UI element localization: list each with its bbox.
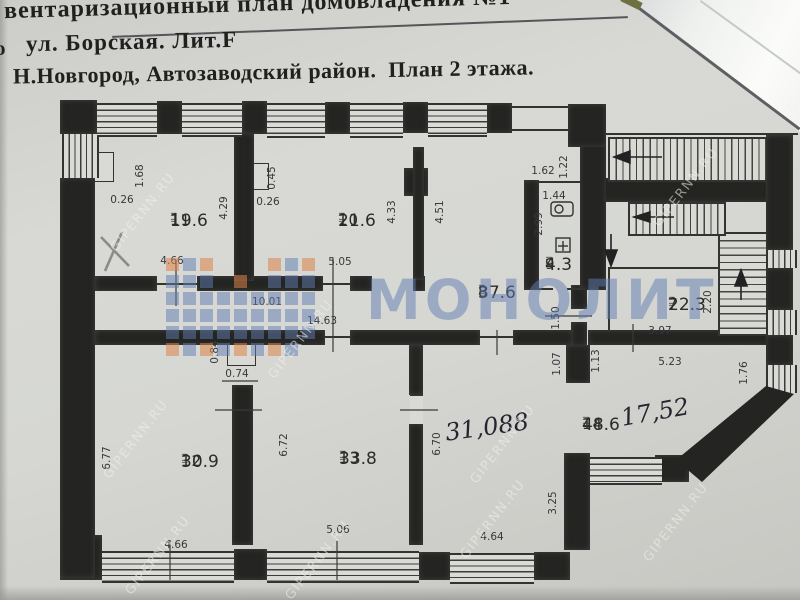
dimension-label: 1.07 <box>551 352 563 375</box>
dimension-label: 4.29 <box>218 196 230 219</box>
logo-tile <box>200 309 213 322</box>
logo-tile <box>268 309 281 322</box>
dimension-label: 0.26 <box>110 194 133 206</box>
logo-tile <box>234 309 247 322</box>
logo-tile <box>166 292 179 305</box>
logo-tile <box>183 343 196 356</box>
dimension-label: 4.33 <box>386 200 398 223</box>
logo-tile <box>166 275 179 288</box>
logo-tile <box>234 326 247 339</box>
logo-tile <box>268 326 281 339</box>
logo-tile <box>234 275 247 288</box>
logo-tile <box>200 292 213 305</box>
document-title-line2: ул. Борская. Лит.F <box>26 27 238 57</box>
logo-tile <box>251 292 264 305</box>
dimension-label: 1.13 <box>590 349 602 372</box>
logo-tile <box>217 292 230 305</box>
dimension-label: 1.62 <box>531 165 554 177</box>
logo-tile <box>268 258 281 271</box>
room-area: 30.9 <box>181 453 219 472</box>
logo-tile <box>183 258 196 271</box>
logo-tile <box>302 292 315 305</box>
logo-tile <box>268 292 281 305</box>
dimension-label: 1.68 <box>134 164 146 187</box>
dimension-label: 0.26 <box>256 196 279 208</box>
logo-tile <box>285 275 298 288</box>
logo-tile <box>166 343 179 356</box>
brand-watermark-text: МОНОЛИТ <box>366 268 718 332</box>
stair-arrow-left-upper-icon <box>614 151 662 163</box>
dimension-label: 2.99 <box>533 212 545 235</box>
logo-tile <box>285 292 298 305</box>
logo-tile <box>251 326 264 339</box>
toilet-icon <box>551 202 573 216</box>
logo-tile <box>217 343 230 356</box>
logo-tile <box>166 309 179 322</box>
logo-tile <box>251 309 264 322</box>
logo-tile <box>285 258 298 271</box>
dimension-label: 0.45 <box>266 166 278 189</box>
logo-tile <box>217 309 230 322</box>
sink-icon <box>556 238 570 252</box>
dimension-label: 5.05 <box>328 256 351 268</box>
logo-tile <box>302 275 315 288</box>
logo-tile <box>200 343 213 356</box>
logo-tile <box>200 275 213 288</box>
dimension-label: 1.76 <box>738 361 750 384</box>
stair-arrow-down-icon <box>605 234 617 266</box>
logo-tile <box>183 326 196 339</box>
logo-tile <box>217 326 230 339</box>
logo-tile <box>200 258 213 271</box>
dimension-label: 0.74 <box>225 368 248 380</box>
logo-tile <box>234 292 247 305</box>
logo-tile <box>166 258 179 271</box>
scanned-floor-plan-photo: вентаризационный план домовладения №1 о … <box>0 0 800 600</box>
room-area: 48.6 <box>582 416 620 435</box>
dimension-label: 1.44 <box>542 190 565 202</box>
dimension-label: 6.72 <box>278 433 290 456</box>
logo-tile <box>268 275 281 288</box>
room-area: 21.6 <box>338 212 376 231</box>
logo-tile <box>183 292 196 305</box>
logo-tile <box>251 343 264 356</box>
dimension-label: 5.23 <box>658 356 681 368</box>
logo-tile <box>200 326 213 339</box>
dimension-label: 6.70 <box>431 432 443 455</box>
logo-tile <box>234 343 247 356</box>
dimension-label: 1.22 <box>558 155 570 178</box>
logo-tile <box>302 258 315 271</box>
dimension-label: 4.51 <box>434 200 446 223</box>
chamfer-wall <box>676 386 794 482</box>
logo-tile <box>183 275 196 288</box>
stair-arrow-up-icon <box>735 270 747 300</box>
dimension-label: 3.25 <box>547 491 559 514</box>
room-area: 33.8 <box>339 450 377 469</box>
logo-tile <box>166 326 179 339</box>
cut-off-character: о <box>0 36 6 61</box>
logo-tile <box>285 309 298 322</box>
room-area: 19.6 <box>170 212 208 231</box>
logo-tile <box>183 309 196 322</box>
